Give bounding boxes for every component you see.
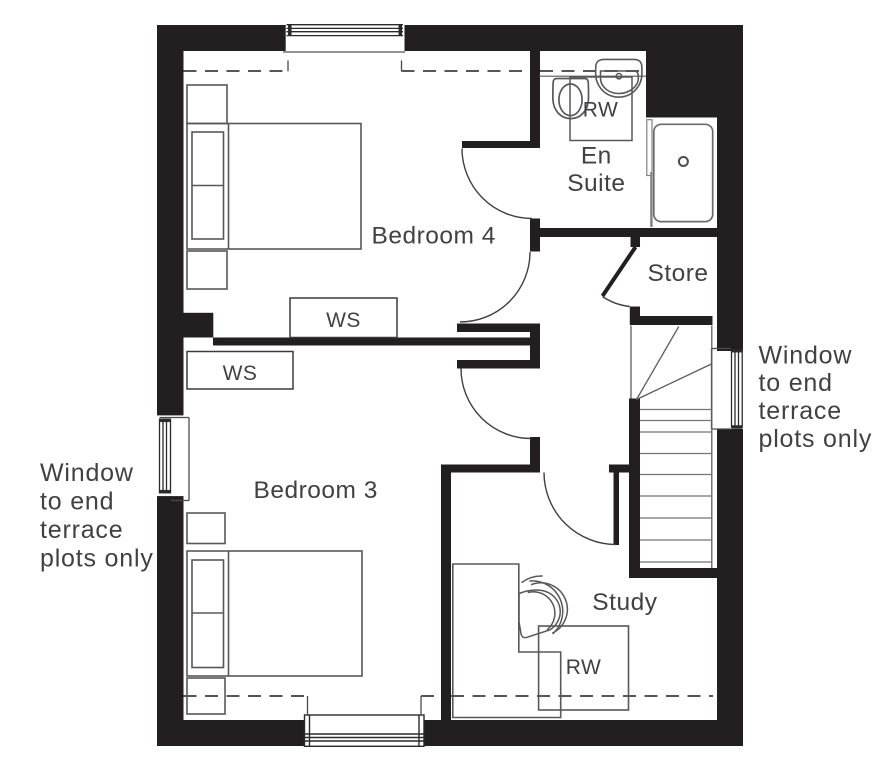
svg-text:WS: WS xyxy=(223,362,258,385)
svg-text:Bedroom 3: Bedroom 3 xyxy=(254,477,378,504)
svg-text:to end: to end xyxy=(759,369,833,397)
svg-text:to end: to end xyxy=(40,488,114,516)
svg-text:Store: Store xyxy=(648,260,709,287)
svg-text:WS: WS xyxy=(326,309,361,332)
svg-text:plots only: plots only xyxy=(759,425,873,453)
svg-text:plots only: plots only xyxy=(40,545,154,573)
svg-text:Study: Study xyxy=(592,589,657,616)
svg-text:terrace: terrace xyxy=(759,397,842,425)
svg-text:Bedroom 4: Bedroom 4 xyxy=(372,223,496,250)
svg-text:terrace: terrace xyxy=(40,516,123,544)
svg-text:En: En xyxy=(581,143,612,170)
svg-text:Window: Window xyxy=(759,342,853,370)
svg-text:Suite: Suite xyxy=(567,170,625,197)
svg-text:RW: RW xyxy=(583,99,619,122)
svg-text:Window: Window xyxy=(40,459,134,487)
svg-text:RW: RW xyxy=(566,656,602,679)
